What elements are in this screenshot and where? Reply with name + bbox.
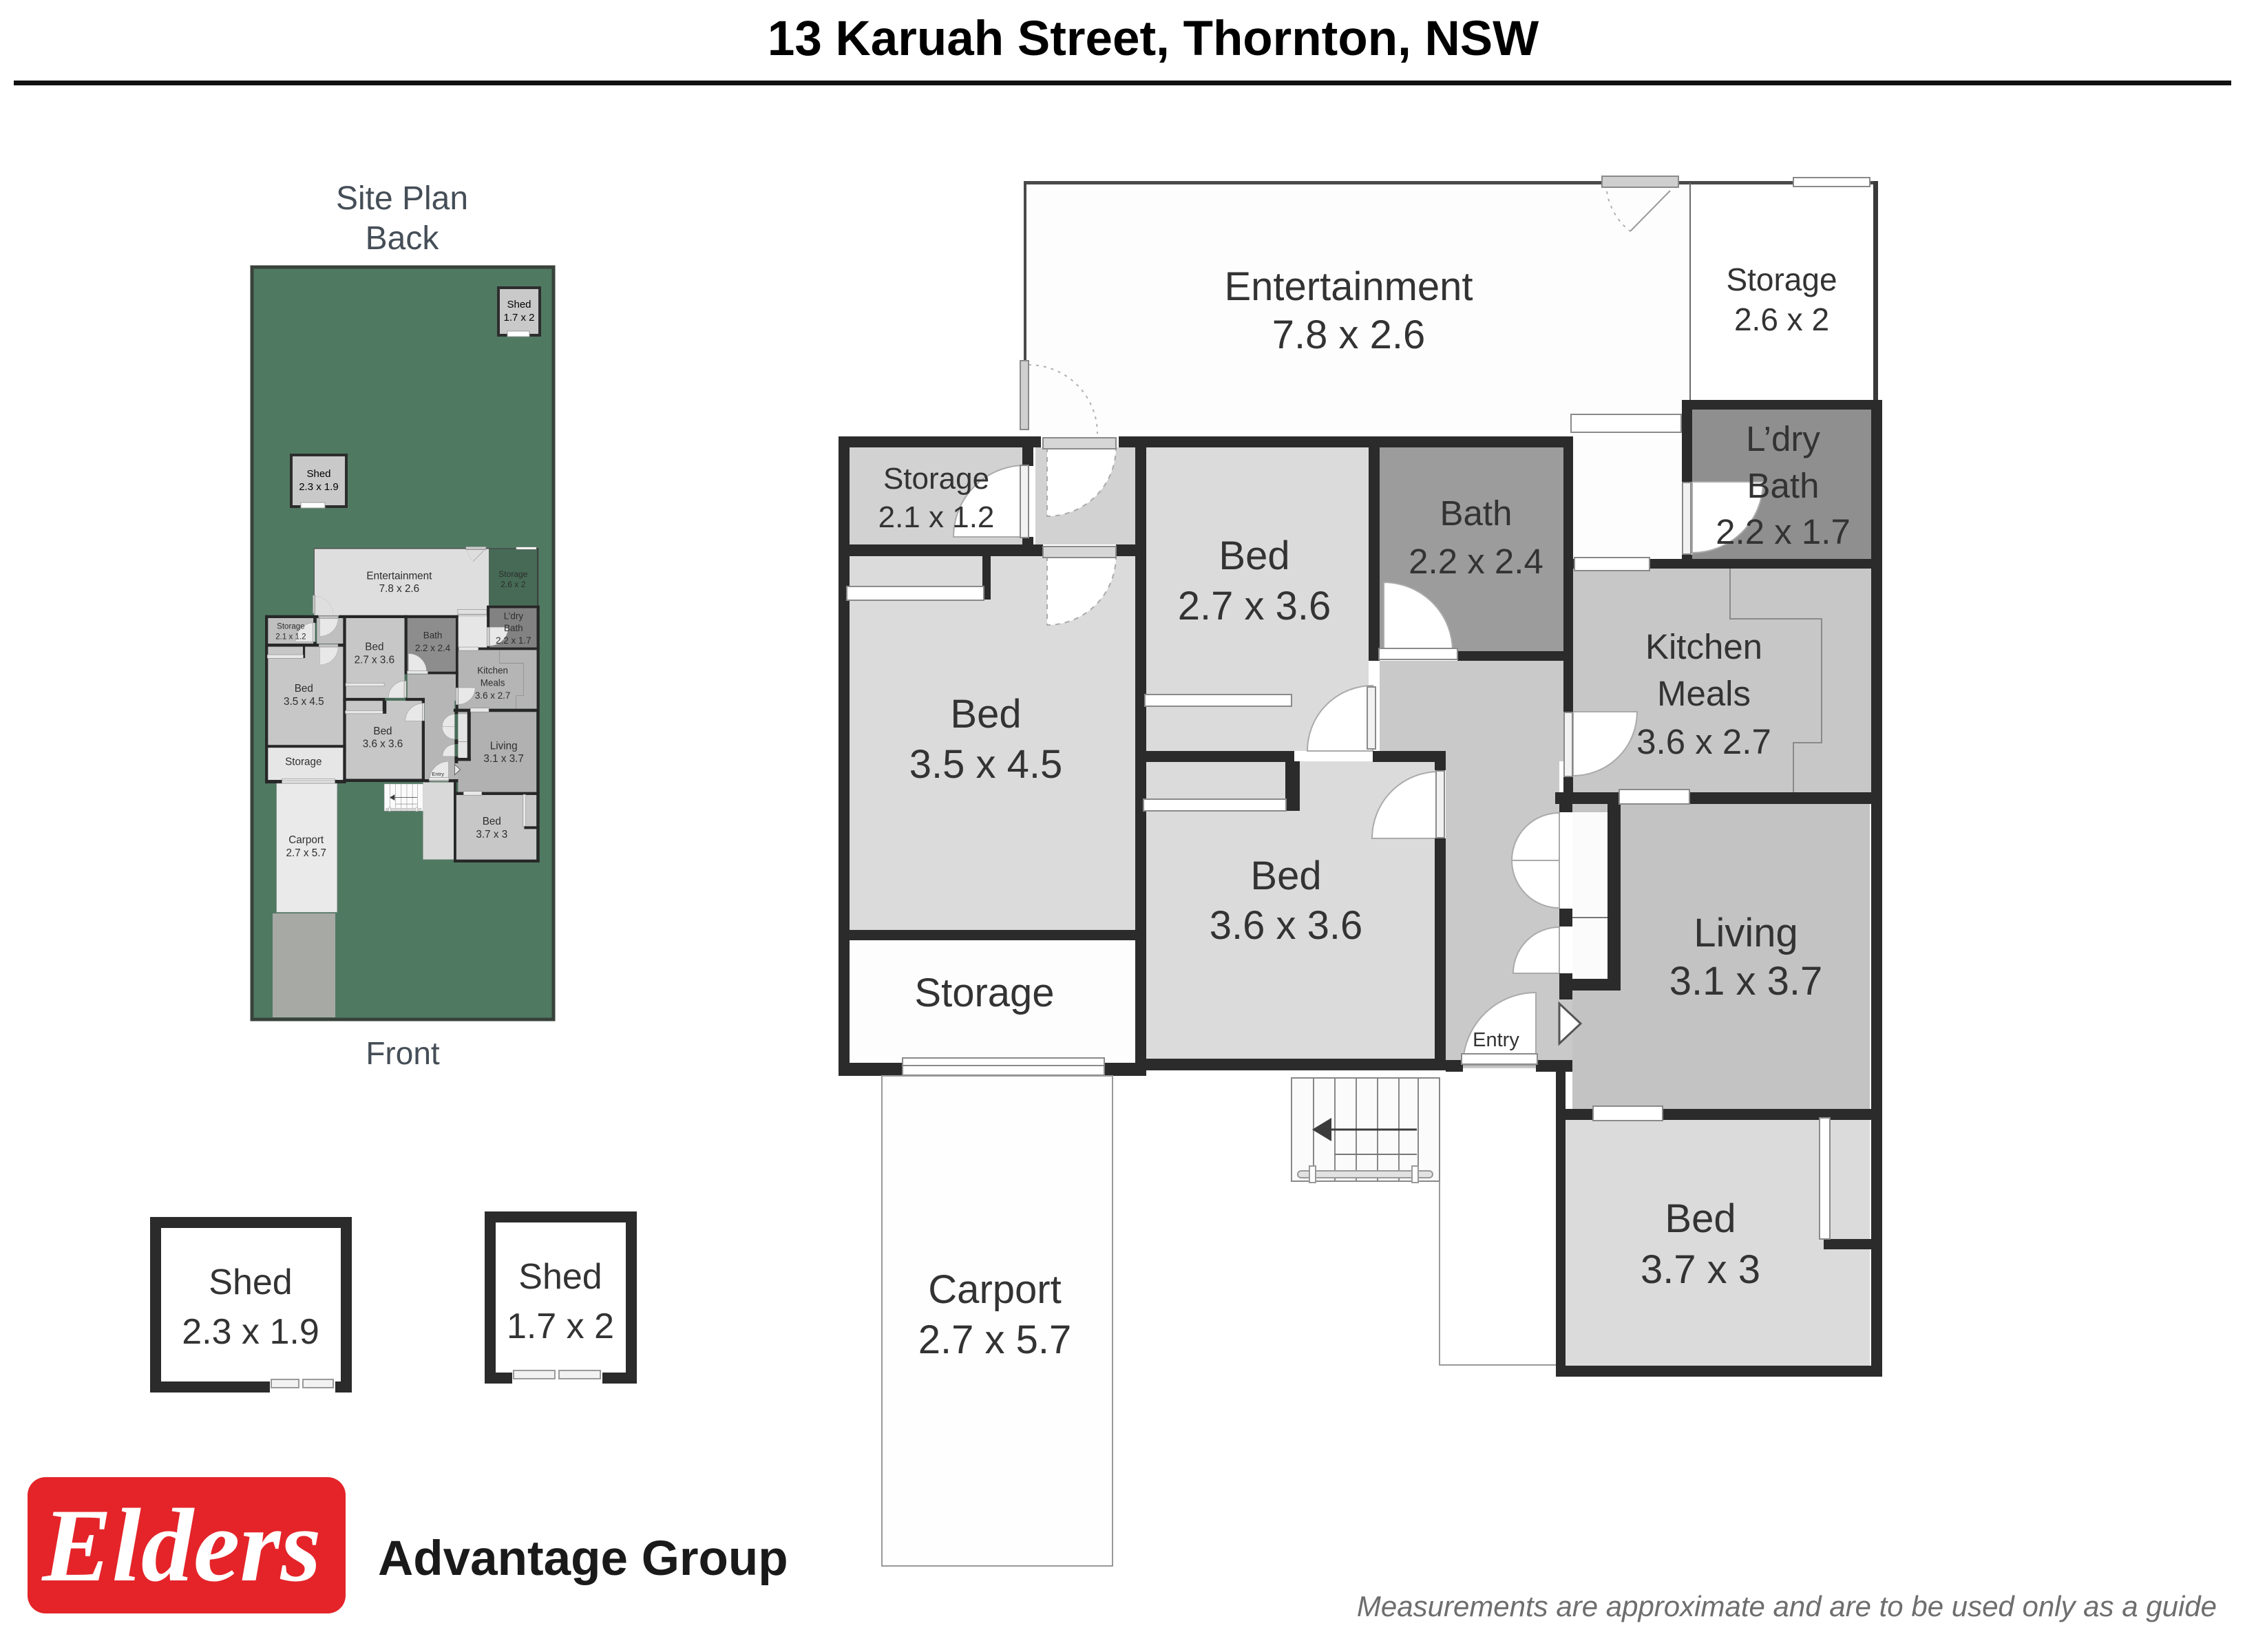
svg-text:Bed: Bed: [950, 692, 1021, 737]
svg-text:Bed: Bed: [1665, 1196, 1736, 1241]
svg-text:Entertainment: Entertainment: [1224, 264, 1473, 309]
svg-text:2.7 x 5.7: 2.7 x 5.7: [918, 1317, 1071, 1362]
svg-text:Elders: Elders: [41, 1487, 321, 1603]
svg-text:Bed: Bed: [1219, 533, 1289, 578]
svg-text:3.1 x 3.7: 3.1 x 3.7: [1669, 959, 1822, 1004]
svg-text:2.3 x 1.9: 2.3 x 1.9: [182, 1312, 319, 1352]
svg-text:2.2 x 2.4: 2.2 x 2.4: [1409, 542, 1543, 581]
svg-text:Storage: Storage: [914, 971, 1054, 1015]
svg-text:Storage: Storage: [883, 462, 989, 496]
svg-text:Carport: Carport: [928, 1267, 1061, 1312]
svg-text:Front: Front: [366, 1035, 440, 1071]
svg-text:Advantage Group: Advantage Group: [378, 1532, 788, 1586]
svg-text:Measurements are approximate a: Measurements are approximate and are to …: [1357, 1590, 2217, 1622]
svg-text:Meals: Meals: [1657, 674, 1751, 713]
svg-text:Bed: Bed: [1250, 854, 1321, 898]
svg-text:7.8 x 2.6: 7.8 x 2.6: [1272, 313, 1425, 357]
svg-text:13 Karuah Street, Thornton, NS: 13 Karuah Street, Thornton, NSW: [768, 12, 1539, 66]
svg-text:2.2 x 1.7: 2.2 x 1.7: [1716, 512, 1851, 551]
svg-text:3.6 x 3.6: 3.6 x 3.6: [1210, 903, 1362, 948]
svg-text:3.6 x 2.7: 3.6 x 2.7: [1636, 722, 1771, 761]
svg-text:Living: Living: [1694, 911, 1798, 955]
svg-text:Entry: Entry: [1473, 1029, 1519, 1051]
svg-text:Shed: Shed: [518, 1257, 602, 1297]
svg-text:Site Plan: Site Plan: [336, 180, 468, 217]
svg-text:Shed: Shed: [209, 1262, 292, 1302]
svg-text:1.7 x 2: 1.7 x 2: [507, 1306, 614, 1346]
svg-text:Kitchen: Kitchen: [1645, 627, 1762, 666]
svg-text:2.1 x 1.2: 2.1 x 1.2: [878, 500, 995, 534]
svg-text:L’dry: L’dry: [1746, 419, 1820, 458]
svg-text:Shed: Shed: [507, 299, 531, 310]
svg-text:Bath: Bath: [1440, 494, 1513, 533]
svg-text:2.3 x 1.9: 2.3 x 1.9: [299, 481, 339, 493]
svg-text:Back: Back: [366, 220, 440, 257]
svg-text:1.7 x 2: 1.7 x 2: [503, 312, 534, 324]
svg-text:3.7 x 3: 3.7 x 3: [1641, 1247, 1760, 1292]
svg-text:Shed: Shed: [306, 468, 330, 480]
svg-text:Bath: Bath: [1747, 466, 1820, 505]
svg-text:Storage: Storage: [1726, 262, 1837, 297]
svg-text:3.5 x 4.5: 3.5 x 4.5: [909, 742, 1062, 787]
svg-text:2.6 x 2: 2.6 x 2: [1734, 301, 1829, 337]
svg-text:2.7 x 3.6: 2.7 x 3.6: [1178, 584, 1331, 628]
